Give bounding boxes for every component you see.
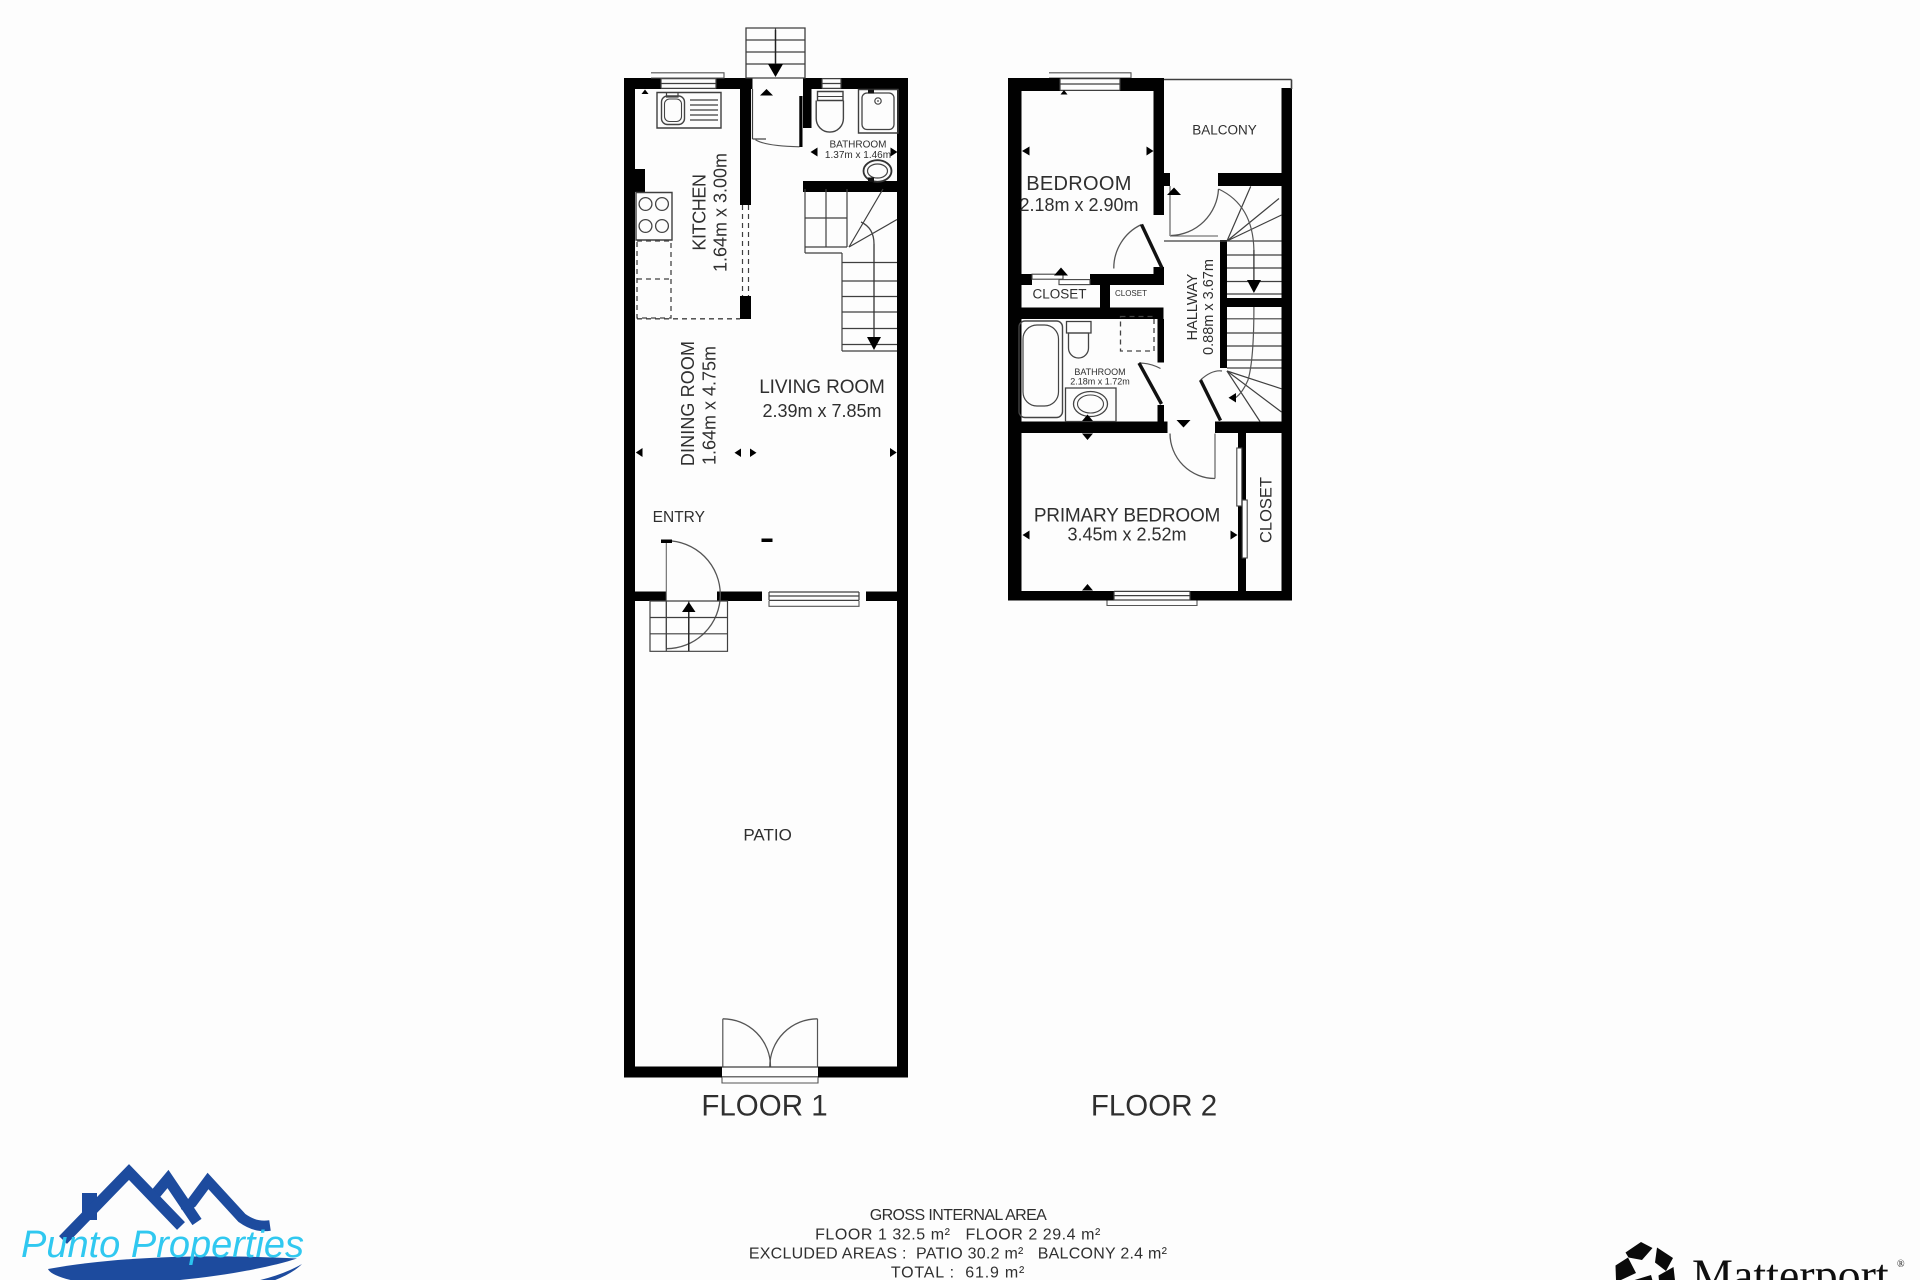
svg-text:1.64m x 3.00m: 1.64m x 3.00m [711, 153, 731, 272]
svg-text:BALCONY: BALCONY [1192, 123, 1257, 138]
svg-text:LIVING ROOM: LIVING ROOM [759, 377, 885, 398]
svg-text:2.18m x 1.72m: 2.18m x 1.72m [1070, 377, 1130, 387]
svg-text:1.64m x 4.75m: 1.64m x 4.75m [700, 346, 720, 465]
svg-text:FLOOR 1: FLOOR 1 [701, 1090, 827, 1123]
svg-text:2.39m x 7.85m: 2.39m x 7.85m [762, 401, 881, 421]
svg-text:EXCLUDED AREAS : PATIO 30.2 m: EXCLUDED AREAS : PATIO 30.2 m² BALCONY 2… [749, 1245, 1168, 1262]
svg-text:®: ® [1897, 1259, 1905, 1270]
svg-text:FLOOR 1 32.5 m² FLOOR 2 29.4: FLOOR 1 32.5 m² FLOOR 2 29.4 m² [815, 1227, 1101, 1244]
svg-text:PATIO: PATIO [743, 826, 792, 845]
svg-text:Matterport: Matterport [1692, 1250, 1889, 1280]
svg-text:CLOSET: CLOSET [1115, 289, 1147, 298]
svg-text:DINING ROOM: DINING ROOM [678, 341, 698, 466]
svg-text:0.88m x 3.67m: 0.88m x 3.67m [1201, 259, 1217, 355]
svg-text:KITCHEN: KITCHEN [690, 174, 710, 250]
svg-text:ENTRY: ENTRY [653, 509, 705, 526]
svg-text:GROSS INTERNAL AREA: GROSS INTERNAL AREA [870, 1207, 1047, 1224]
svg-text:Punto Properties: Punto Properties [21, 1224, 304, 1266]
svg-text:3.45m x 2.52m: 3.45m x 2.52m [1067, 525, 1186, 545]
svg-text:2.18m x 2.90m: 2.18m x 2.90m [1019, 195, 1138, 215]
svg-text:CLOSET: CLOSET [1258, 477, 1276, 543]
svg-text:BEDROOM: BEDROOM [1026, 173, 1131, 195]
svg-text:FLOOR 2: FLOOR 2 [1091, 1090, 1217, 1123]
svg-text:1.37m x 1.46m: 1.37m x 1.46m [825, 150, 891, 161]
svg-text:CLOSET: CLOSET [1032, 287, 1086, 302]
svg-text:BATHROOM: BATHROOM [829, 140, 886, 151]
svg-text:PRIMARY BEDROOM: PRIMARY BEDROOM [1034, 506, 1220, 527]
svg-text:HALLWAY: HALLWAY [1185, 273, 1201, 340]
svg-text:BATHROOM: BATHROOM [1074, 367, 1125, 377]
